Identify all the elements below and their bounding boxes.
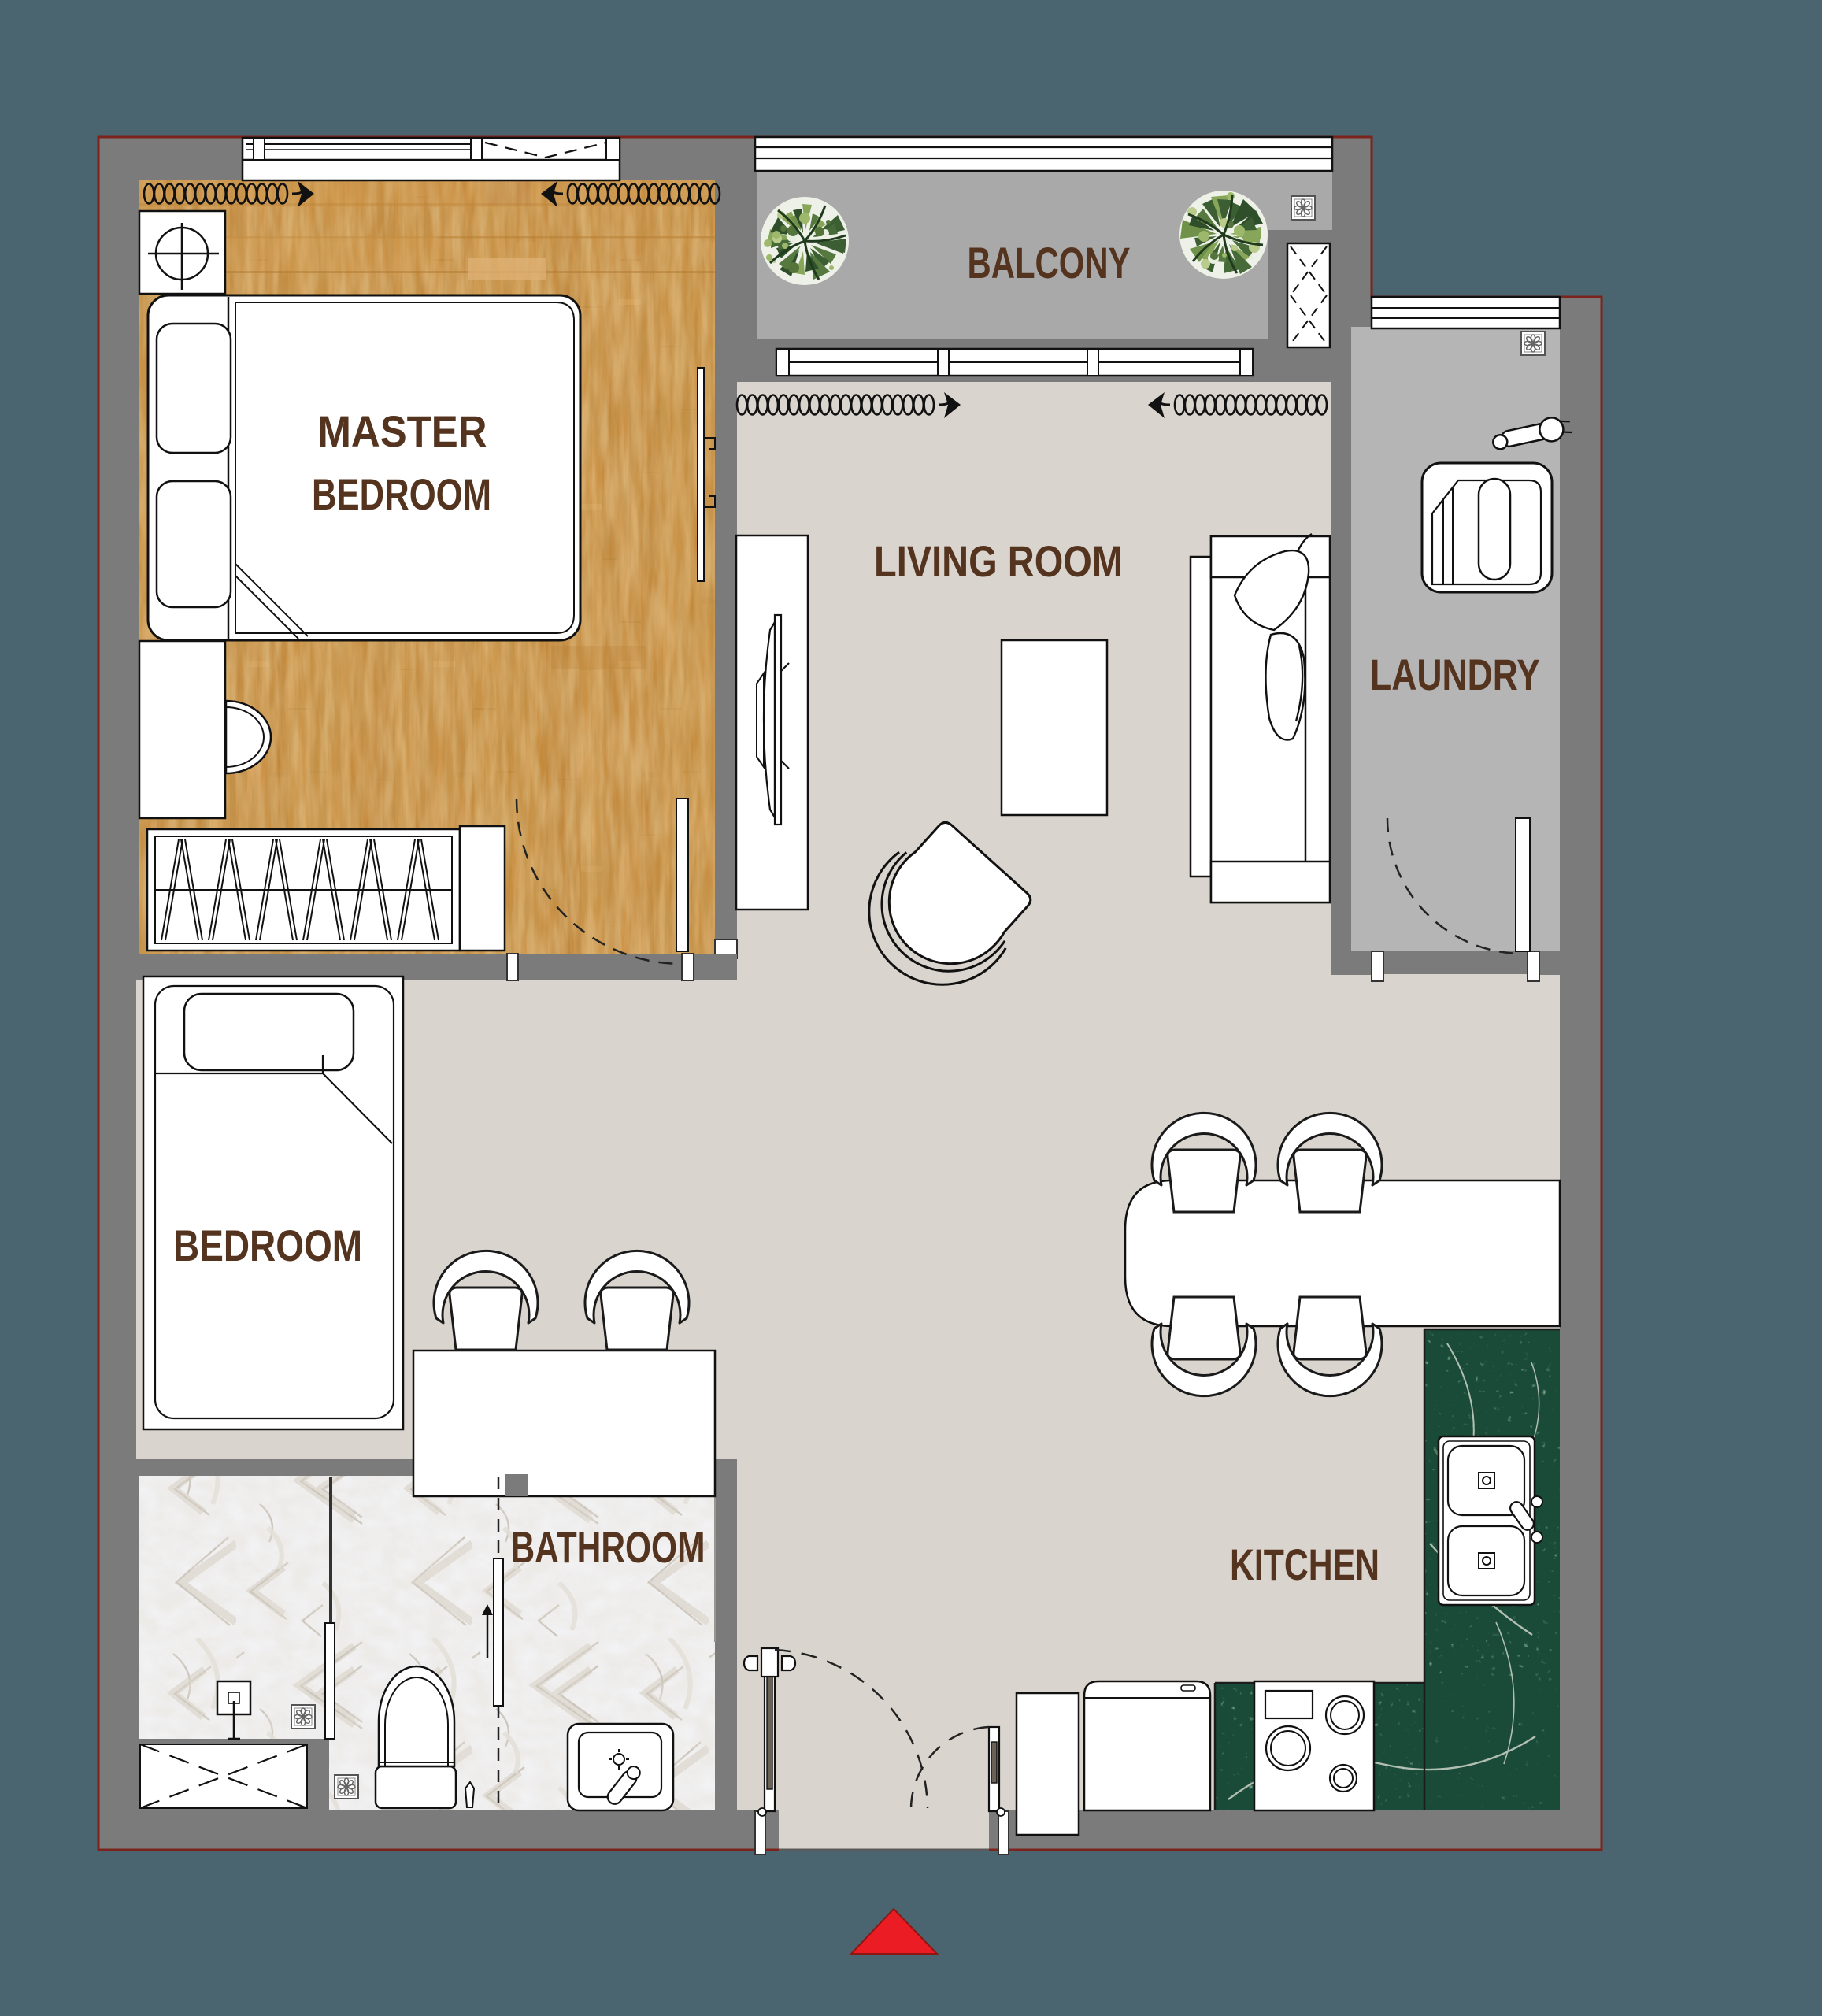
svg-text:LAUNDRY: LAUNDRY — [1370, 650, 1540, 699]
svg-text:MASTER: MASTER — [318, 406, 487, 456]
svg-text:BEDROOM: BEDROOM — [312, 469, 491, 519]
svg-text:BEDROOM: BEDROOM — [173, 1221, 362, 1270]
svg-text:BALCONY: BALCONY — [968, 238, 1131, 287]
svg-text:BATHROOM: BATHROOM — [511, 1522, 705, 1572]
svg-text:LIVING ROOM: LIVING ROOM — [874, 536, 1123, 586]
svg-text:KITCHEN: KITCHEN — [1230, 1540, 1379, 1589]
